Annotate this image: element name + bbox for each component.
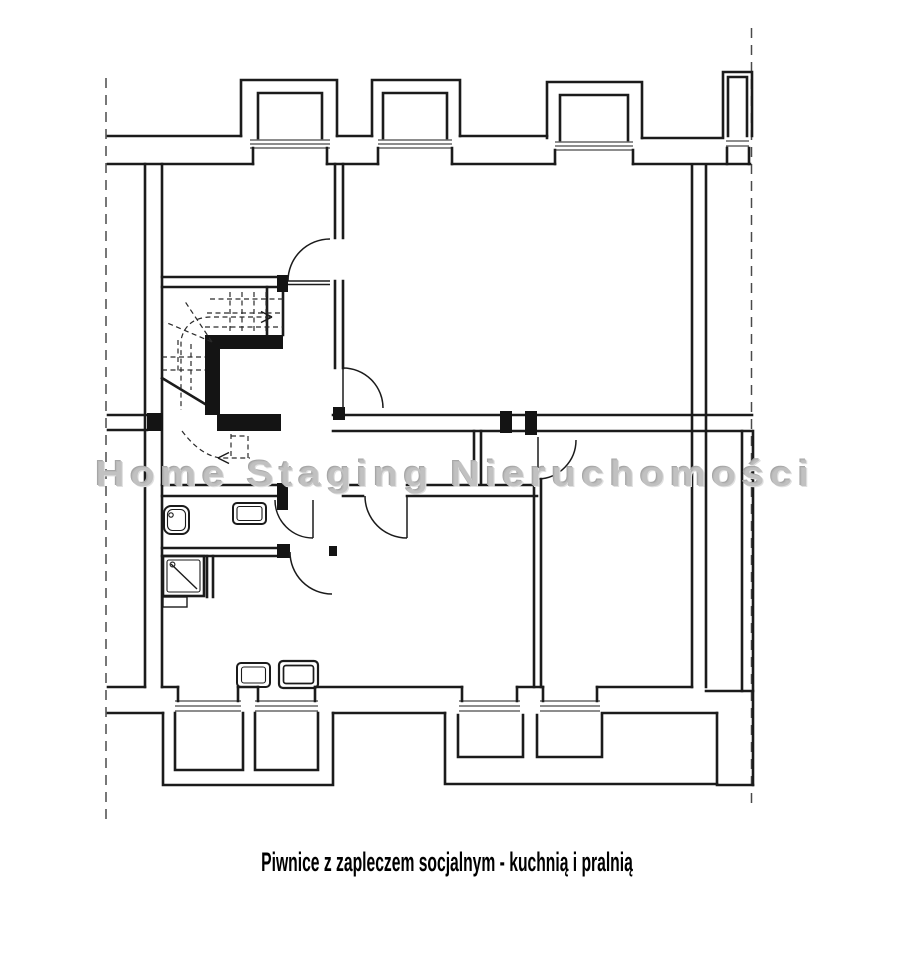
- left-wall-pier: [147, 413, 163, 431]
- window-bay-top-1: [241, 80, 337, 164]
- washing-machine-2: [279, 661, 318, 688]
- window-well-bottom-3: [458, 715, 523, 757]
- door-arc: [290, 552, 332, 594]
- door-kitchen: [365, 496, 407, 538]
- bathtub: [164, 506, 189, 534]
- mid-wall-left-stub: [108, 415, 147, 430]
- window-bay-top-3: [547, 82, 642, 164]
- window-bay-top-2: [372, 80, 460, 164]
- shower-stub-wall: [207, 556, 213, 597]
- laundry-door-jamb: [277, 544, 290, 558]
- mid-wall-notch: [333, 407, 345, 420]
- door-arc: [343, 368, 383, 408]
- direction-arrows: [218, 312, 272, 464]
- washing-machine-1: [237, 663, 270, 687]
- mid-wall-right: [333, 415, 752, 431]
- central-wall: [335, 164, 343, 368]
- stair-hall-top-wall: [162, 277, 277, 287]
- mid-wall-pier-2: [525, 411, 537, 435]
- bottom-left-stub: [108, 687, 163, 713]
- mid-wall-bar: [217, 414, 281, 431]
- top-wall-outer: [108, 136, 723, 138]
- window-well-bottom-2: [255, 713, 318, 770]
- caption: Piwnice z zapleczem socjalnym - kuchnią …: [261, 847, 633, 878]
- door-stair-hall: [288, 239, 330, 285]
- stair-treads: [162, 292, 283, 458]
- stair-hall-right-wall: [267, 287, 283, 335]
- bottom-opening-jambs: [178, 687, 597, 701]
- mid-wall-pier-1: [500, 411, 512, 433]
- watermark: Home Staging Nieruchomości: [95, 453, 814, 495]
- bottom-outline-right: [445, 713, 717, 784]
- door-mid-passage: [343, 368, 383, 408]
- window-well-bottom-4: [537, 715, 602, 757]
- floor-plan-page: Home Staging Nieruchomości Piwnice z zap…: [0, 0, 905, 960]
- window-well-bottom-1: [175, 713, 243, 770]
- door-arc: [288, 239, 330, 281]
- stair-cut-line: [162, 378, 205, 404]
- bottom-outline-left: [163, 713, 333, 785]
- door-laundry: [290, 552, 332, 594]
- shower: [163, 556, 204, 607]
- stair-wall-vertical: [205, 349, 220, 415]
- stair-door-jamb: [277, 275, 288, 292]
- right-room-wall: [692, 165, 706, 687]
- washbasin: [233, 503, 266, 524]
- window-bay-top-right: [723, 72, 752, 164]
- laundry-door-jamb-right: [329, 546, 337, 556]
- walls: [108, 72, 753, 785]
- room-divider-wall: [534, 479, 541, 687]
- stair-wall-bar: [205, 335, 283, 349]
- door-arc: [365, 496, 407, 538]
- fixtures: [163, 503, 318, 688]
